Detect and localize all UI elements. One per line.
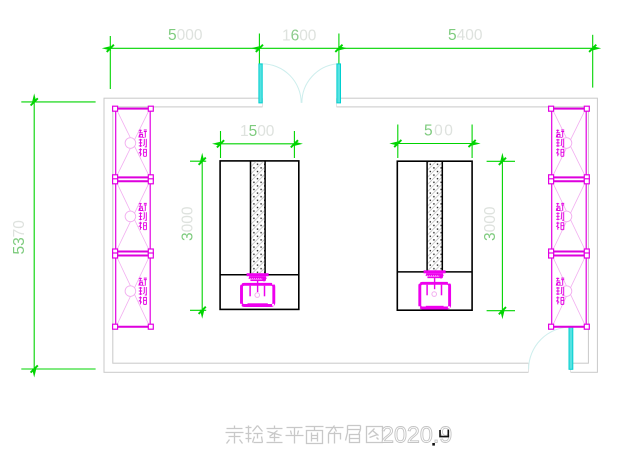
svg-text:00: 00 xyxy=(434,123,454,140)
svg-text:400: 400 xyxy=(457,27,483,44)
svg-text:5: 5 xyxy=(249,123,258,140)
svg-text:00: 00 xyxy=(299,28,317,45)
svg-text:2020.9: 2020.9 xyxy=(381,422,452,448)
svg-text:1: 1 xyxy=(240,123,249,140)
svg-text:00: 00 xyxy=(257,123,275,140)
svg-text:000: 000 xyxy=(180,206,197,232)
svg-text:53: 53 xyxy=(11,237,28,254)
svg-text:5: 5 xyxy=(168,27,177,44)
svg-text:5: 5 xyxy=(424,123,434,140)
svg-text:1: 1 xyxy=(282,28,291,45)
svg-text:000: 000 xyxy=(482,206,499,232)
svg-text:3: 3 xyxy=(482,232,499,241)
svg-text:6: 6 xyxy=(291,28,300,45)
svg-text:3: 3 xyxy=(180,232,197,241)
svg-text:70: 70 xyxy=(11,220,28,238)
svg-text:5: 5 xyxy=(448,27,457,44)
svg-text:000: 000 xyxy=(177,27,203,44)
